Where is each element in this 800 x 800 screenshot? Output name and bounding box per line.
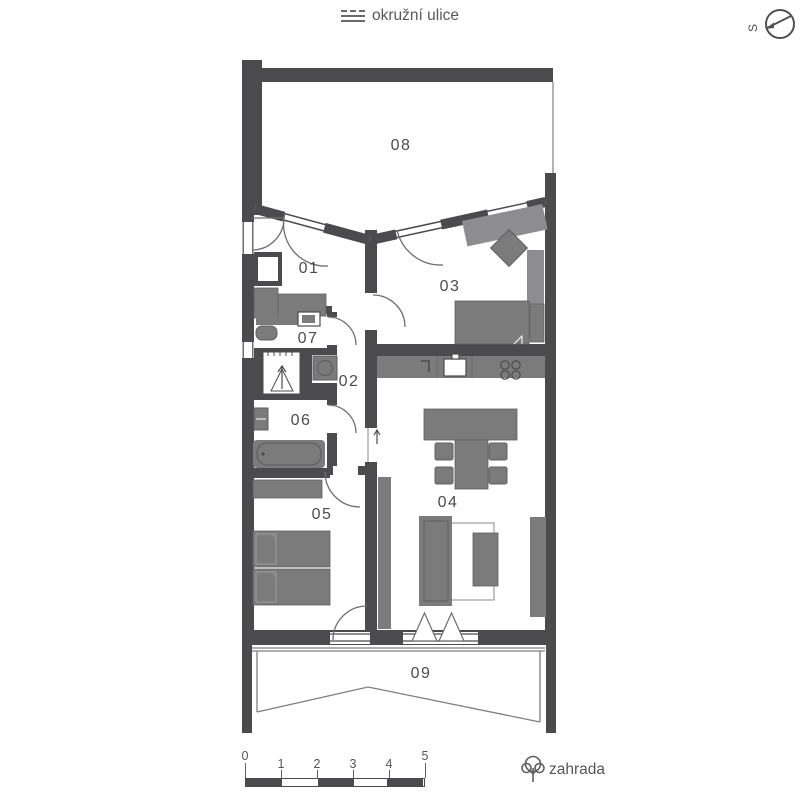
scale-segment [282, 779, 318, 786]
wall-segment [545, 173, 556, 645]
walls [242, 60, 556, 733]
scale-segment [354, 779, 390, 786]
wall-segment [242, 630, 556, 645]
room-label-05: 05 [312, 506, 333, 524]
scale-tick-label: 1 [278, 757, 285, 771]
tall-wardrobe [378, 477, 391, 629]
kitchen-sink [444, 359, 466, 376]
scale-tick [281, 770, 282, 778]
floor-plan [0, 0, 800, 800]
furniture-living [368, 409, 546, 641]
scale-tick [317, 770, 318, 778]
coffee-table [473, 533, 498, 586]
scale-tick [353, 770, 354, 778]
wall-segment [242, 468, 330, 478]
furniture-bedroom-03 [455, 204, 548, 344]
bed [253, 569, 330, 605]
sideboard [530, 517, 546, 617]
folding-door-leaf [439, 613, 464, 641]
kitchen [377, 354, 545, 379]
scale-segment [246, 779, 282, 786]
wall-segment [546, 645, 556, 733]
room-label-04: 04 [438, 494, 459, 512]
scale-tick-label: 5 [422, 749, 429, 763]
room-label-07: 07 [298, 330, 319, 348]
toilet [256, 326, 277, 340]
bathtub-drain [261, 452, 264, 455]
wardrobe [253, 480, 322, 498]
room-label-06: 06 [291, 412, 312, 430]
terrace-edge [257, 687, 540, 722]
scale-tick-label: 3 [350, 757, 357, 771]
glazing-left [254, 204, 370, 245]
scale-tick-label: 2 [314, 757, 321, 771]
scale-segment [387, 779, 423, 786]
room-label-08: 08 [391, 137, 412, 155]
dining-table [455, 440, 488, 489]
door-arc-06 [328, 405, 356, 433]
wall-pier [323, 223, 370, 245]
faucet [452, 354, 459, 359]
folding-door-leaf [412, 613, 437, 641]
wall-segment [242, 60, 262, 215]
door-arc-05 [325, 472, 360, 507]
room-label-01: 01 [299, 260, 320, 278]
scale-tick-label: 4 [386, 757, 393, 771]
wall-segment [327, 433, 337, 466]
scale-bar [245, 778, 425, 787]
entry-door-arc [252, 218, 284, 250]
wall-pier [254, 204, 286, 222]
garden-label: zahrada [549, 761, 605, 779]
bed [455, 301, 529, 344]
scale-tick [425, 763, 426, 778]
scale-tick [389, 770, 390, 778]
hand-basin-bowl [302, 315, 315, 323]
wall-segment [262, 68, 553, 82]
chair [489, 443, 507, 460]
vanity-counter [256, 314, 302, 325]
pillow [530, 304, 544, 342]
tree-icon [517, 753, 549, 787]
door-arc-07 [328, 317, 356, 345]
chair [489, 467, 507, 484]
chair [435, 443, 453, 460]
kitchen-island [424, 409, 517, 440]
wall-segment [365, 344, 556, 356]
wall-segment [242, 215, 254, 645]
washing-machine [313, 356, 337, 380]
door-arc-03 [373, 295, 405, 327]
scale-segment [318, 779, 354, 786]
scale-tick [245, 763, 246, 778]
entry-bench [254, 288, 278, 318]
scale-tick-label: 0 [242, 749, 249, 763]
wall-segment [242, 645, 252, 733]
chair [435, 467, 453, 484]
fixtures-bath [253, 408, 325, 468]
furniture-bedroom-05 [253, 480, 330, 605]
terrace-09-outline [252, 648, 545, 722]
room-label-09: 09 [411, 665, 432, 683]
wall-segment [358, 466, 377, 475]
bed [253, 531, 330, 567]
room-label-03: 03 [440, 278, 461, 296]
room-label-02: 02 [339, 373, 360, 391]
wall-segment [365, 462, 377, 645]
niche [258, 257, 278, 281]
